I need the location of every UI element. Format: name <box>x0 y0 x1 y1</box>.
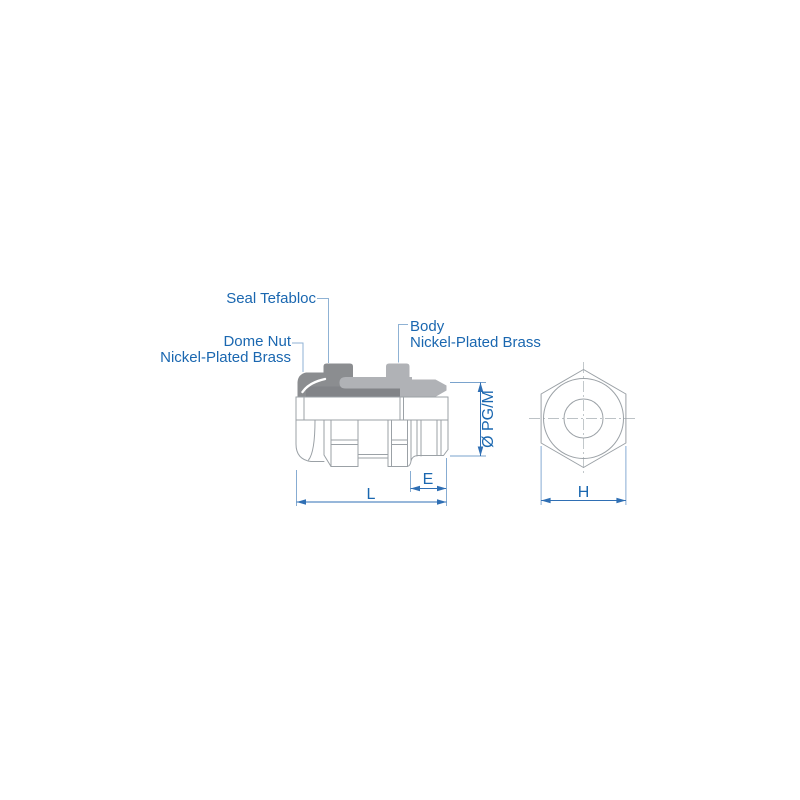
body-band-section <box>400 380 447 397</box>
side-view <box>296 364 448 467</box>
diameter-dim-label: Ø PG/M <box>480 390 497 448</box>
body-material-label: Nickel-Plated Brass <box>410 334 541 351</box>
dimension-diameter: Ø PG/M <box>450 383 497 457</box>
dimension-e: E <box>411 471 447 492</box>
seal-leader-line <box>317 299 329 364</box>
part-labels: Seal Tefabloc Dome Nut Nickel-Plated Bra… <box>160 290 541 372</box>
dome-nut-leader-line <box>292 343 303 372</box>
h-dim-label: H <box>578 484 590 501</box>
seal-label: Seal Tefabloc <box>226 290 316 307</box>
e-dim-label: E <box>423 471 434 488</box>
body-tab-section <box>386 364 410 381</box>
dome-nut-label: Dome Nut <box>223 333 291 350</box>
dome-nut-material-label: Nickel-Plated Brass <box>160 349 291 366</box>
body-leader-line <box>399 325 409 363</box>
cable-gland-diagram: Seal Tefabloc Dome Nut Nickel-Plated Bra… <box>0 0 800 800</box>
side-view-outline <box>296 397 448 467</box>
end-view <box>529 362 638 476</box>
drawing-canvas: Seal Tefabloc Dome Nut Nickel-Plated Bra… <box>0 0 800 800</box>
dimension-h: H <box>541 446 626 505</box>
body-label: Body <box>410 318 445 335</box>
l-dim-label: L <box>367 486 376 503</box>
